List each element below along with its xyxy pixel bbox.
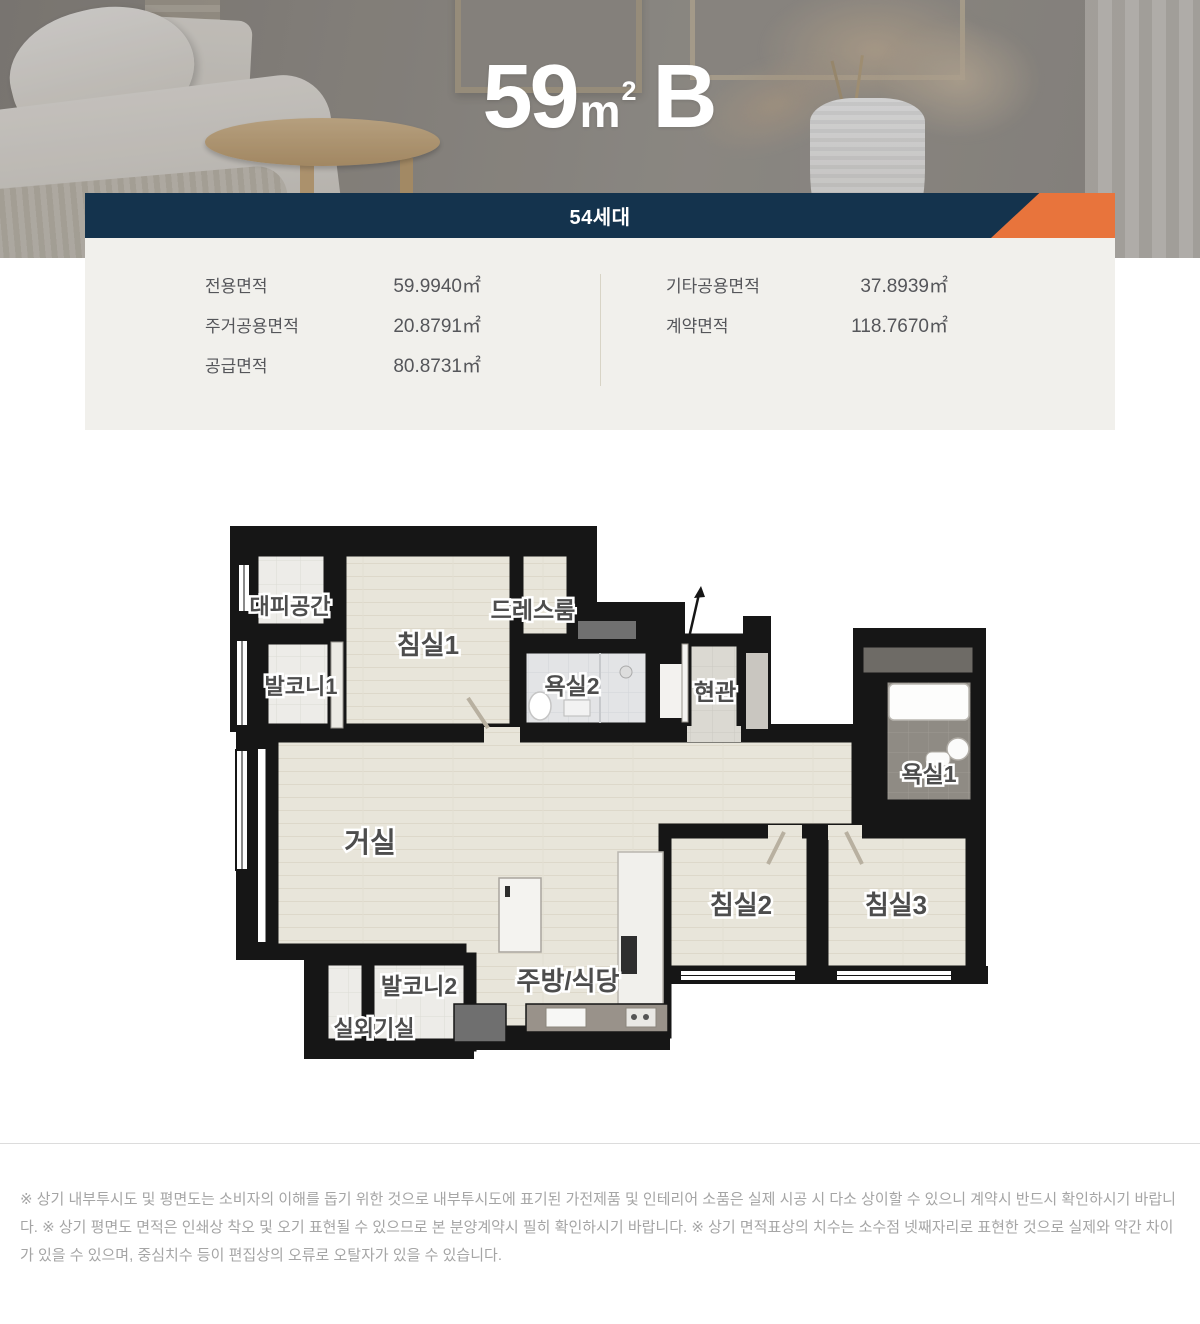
room-label-bedroom1: 침실1 xyxy=(397,630,459,660)
room-label-refuge: 대피공간 xyxy=(250,594,331,619)
area-value: 118.7670㎡ xyxy=(784,311,948,338)
area-value: 80.8731㎡ xyxy=(323,351,481,378)
storage-unit xyxy=(454,1004,506,1042)
area-info-right-column: 기타공용면적 37.8939㎡ 계약면적 118.7670㎡ xyxy=(600,264,1115,344)
entrance-door xyxy=(682,644,688,722)
room-label-entrance: 현관 xyxy=(694,679,736,705)
room-label-living: 거실 xyxy=(344,827,396,858)
shower-head xyxy=(620,666,632,678)
title-superscript: 2 xyxy=(621,76,636,107)
area-row: 계약면적 118.7670㎡ xyxy=(600,304,1115,344)
area-label: 기타공용면적 xyxy=(666,272,784,297)
floor-plan: 대피공간 발코니1 침실1 드레스룸 욕실2 현관 욕실1 거실 주방/식당 발… xyxy=(228,512,988,1082)
area-row: 공급면적 80.8731㎡ xyxy=(85,344,600,384)
cooktop xyxy=(626,1008,656,1027)
oven xyxy=(621,936,637,974)
room-label-ac-unit: 실외기실 xyxy=(334,1016,415,1041)
entry-niche xyxy=(660,664,682,718)
area-label: 주거공용면적 xyxy=(205,312,323,337)
area-label: 전용면적 xyxy=(205,272,323,297)
bathtub xyxy=(889,684,969,720)
footer: ※ 상기 내부투시도 및 평면도는 소비자의 이해를 돕기 위한 것으로 내부투… xyxy=(0,1143,1200,1324)
bedroom1-door-opening xyxy=(484,727,520,747)
title-suffix: B xyxy=(653,46,718,149)
area-row: 전용면적 59.9940㎡ xyxy=(85,264,600,304)
unit-type-title: 59 m 2 B xyxy=(0,46,1200,149)
top-section: 59 m 2 B 54세대 전용면적 59.9940㎡ 주거공용면적 20.87… xyxy=(0,0,1200,430)
room-label-bath1: 욕실1 xyxy=(901,761,956,787)
tall-kitchen-cabinet xyxy=(618,852,663,1004)
room-label-balcony1: 발코니1 xyxy=(265,674,338,699)
shoe-closet xyxy=(745,652,769,730)
wardrobe xyxy=(862,646,974,674)
disclaimer-text: ※ 상기 내부투시도 및 평면도는 소비자의 이해를 돕기 위한 것으로 내부투… xyxy=(20,1186,1180,1269)
kitchen-sink xyxy=(546,1008,586,1027)
area-value: 59.9940㎡ xyxy=(323,271,481,298)
duct xyxy=(577,620,637,640)
room-label-balcony2: 발코니2 xyxy=(381,973,457,999)
area-value: 37.8939㎡ xyxy=(784,271,948,298)
title-number: 59 xyxy=(482,46,576,149)
room-dressroom xyxy=(517,550,573,640)
title-unit: m xyxy=(580,84,621,138)
room-label-bath2: 욕실2 xyxy=(544,673,599,699)
area-info-panel: 전용면적 59.9940㎡ 주거공용면적 20.8791㎡ 공급면적 80.87… xyxy=(85,238,1115,430)
area-value: 20.8791㎡ xyxy=(323,311,481,338)
banner-accent-shape xyxy=(991,193,1115,238)
entrance-opening xyxy=(687,726,741,742)
room-label-dressroom: 드레스룸 xyxy=(491,597,576,623)
area-label: 계약면적 xyxy=(666,312,784,337)
area-label: 공급면적 xyxy=(205,352,323,377)
room-label-bedroom3: 침실3 xyxy=(865,890,927,920)
room-label-kitchen: 주방/식당 xyxy=(517,966,620,996)
area-row: 기타공용면적 37.8939㎡ xyxy=(600,264,1115,304)
page: 59 m 2 B 54세대 전용면적 59.9940㎡ 주거공용면적 20.87… xyxy=(0,0,1200,1324)
area-row: 주거공용면적 20.8791㎡ xyxy=(85,304,600,344)
floor-plan-section: 대피공간 발코니1 침실1 드레스룸 욕실2 현관 욕실1 거실 주방/식당 발… xyxy=(228,512,988,1082)
room-label-bedroom2: 침실2 xyxy=(710,890,772,920)
bath2-sink xyxy=(564,700,590,716)
unit-count-banner: 54세대 xyxy=(85,193,1115,238)
unit-count-label: 54세대 xyxy=(569,201,630,230)
area-info-left-column: 전용면적 59.9940㎡ 주거공용면적 20.8791㎡ 공급면적 80.87… xyxy=(85,264,600,384)
